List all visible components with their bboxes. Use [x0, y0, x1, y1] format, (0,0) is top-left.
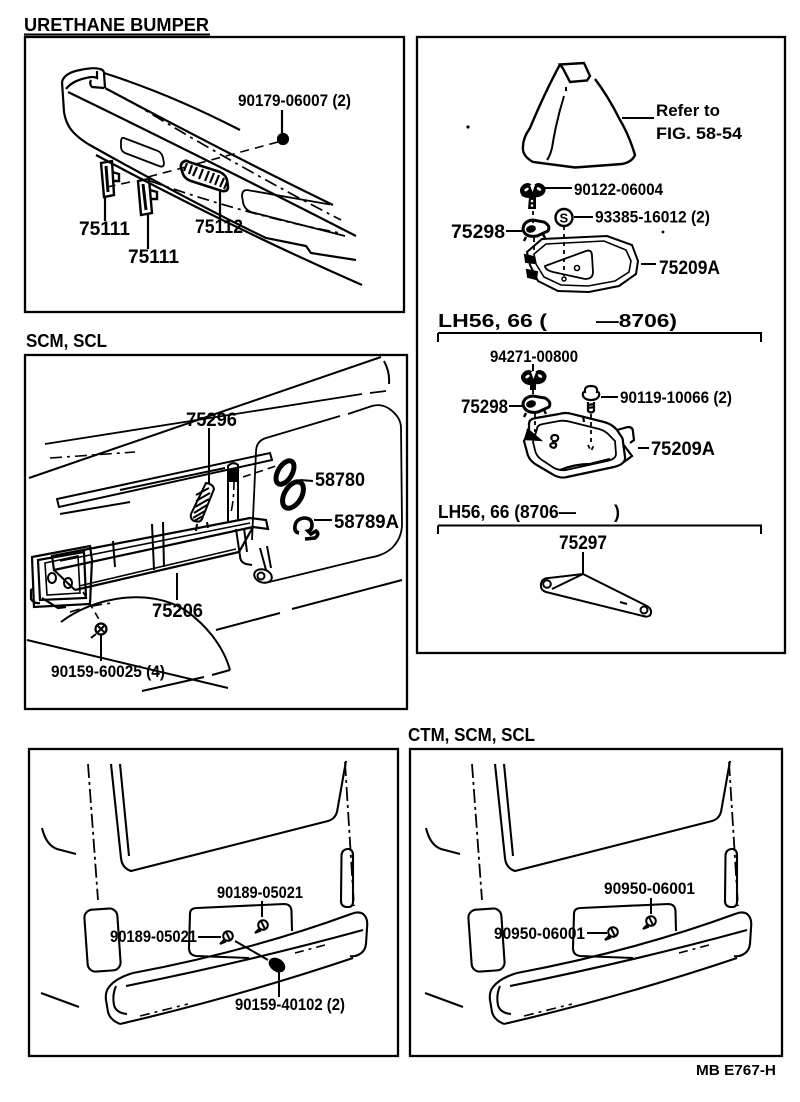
svg-text:90119-10066 (2): 90119-10066 (2) [620, 388, 732, 407]
svg-text:FIG. 58-54: FIG. 58-54 [656, 124, 743, 143]
svg-text:90189-05021: 90189-05021 [217, 883, 303, 902]
svg-text:90950-06001: 90950-06001 [604, 879, 695, 898]
svg-text:): ) [614, 502, 620, 522]
svg-text:58789A: 58789A [334, 512, 399, 533]
svg-text:58780: 58780 [315, 470, 365, 491]
svg-text:CTM, SCM, SCL: CTM, SCM, SCL [408, 725, 535, 745]
svg-text:75209A: 75209A [659, 258, 720, 279]
svg-text:75298: 75298 [451, 222, 505, 243]
svg-text:90159-60025 (4): 90159-60025 (4) [51, 662, 165, 681]
svg-text:94271-00800: 94271-00800 [490, 347, 578, 366]
svg-text:75111: 75111 [79, 219, 130, 240]
svg-text:90159-40102 (2): 90159-40102 (2) [235, 995, 345, 1014]
svg-text:75297: 75297 [559, 533, 607, 554]
svg-text:75111: 75111 [128, 247, 179, 268]
svg-text:90179-06007 (2): 90179-06007 (2) [238, 91, 351, 110]
svg-text:S: S [560, 211, 569, 226]
svg-text:LH56, 66 (: LH56, 66 ( [438, 311, 547, 331]
svg-text:93385-16012 (2): 93385-16012 (2) [595, 208, 710, 227]
svg-text:90950-06001: 90950-06001 [494, 924, 585, 943]
svg-text:90122-06004: 90122-06004 [574, 180, 663, 199]
svg-text:75298: 75298 [461, 397, 508, 418]
svg-text:LH56, 66 (8706—: LH56, 66 (8706— [438, 502, 576, 522]
svg-text:75209A: 75209A [651, 439, 715, 460]
svg-text:Refer to: Refer to [656, 101, 720, 120]
svg-text:SCM, SCL: SCM, SCL [26, 331, 107, 351]
svg-text:URETHANE BUMPER: URETHANE BUMPER [24, 15, 209, 35]
svg-text:MB E767-H: MB E767-H [696, 1062, 776, 1079]
svg-text:—8706): —8706) [596, 311, 677, 331]
svg-text:90189-05021: 90189-05021 [110, 927, 197, 946]
